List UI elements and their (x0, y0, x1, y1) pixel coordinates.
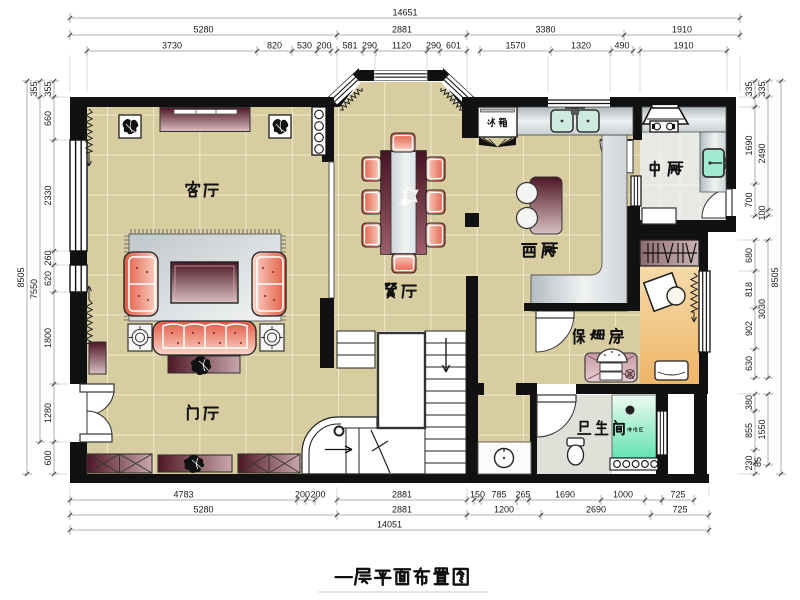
svg-text:855: 855 (744, 423, 754, 438)
svg-text:490: 490 (614, 41, 629, 51)
svg-text:380: 380 (744, 395, 754, 410)
svg-text:14651: 14651 (392, 8, 417, 18)
svg-text:8505: 8505 (770, 267, 780, 287)
svg-text:200: 200 (310, 490, 325, 500)
svg-text:3380: 3380 (535, 25, 555, 35)
svg-text:818: 818 (744, 282, 754, 297)
svg-text:660: 660 (43, 111, 53, 126)
svg-text:335: 335 (757, 81, 767, 96)
svg-text:1000: 1000 (613, 490, 633, 500)
svg-text:14051: 14051 (377, 520, 402, 530)
svg-text:820: 820 (267, 41, 282, 51)
svg-text:7550: 7550 (29, 279, 39, 299)
svg-text:355: 355 (43, 81, 53, 96)
svg-text:2490: 2490 (757, 143, 767, 163)
svg-text:630: 630 (744, 356, 754, 371)
svg-text:150: 150 (470, 490, 485, 500)
svg-text:600: 600 (43, 450, 53, 465)
svg-text:785: 785 (491, 490, 506, 500)
svg-text:1550: 1550 (757, 419, 767, 439)
svg-text:2881: 2881 (392, 25, 412, 35)
svg-text:530: 530 (297, 41, 312, 51)
svg-text:620: 620 (43, 271, 53, 286)
svg-text:1690: 1690 (555, 490, 575, 500)
svg-text:5280: 5280 (193, 505, 213, 515)
svg-text:2881: 2881 (392, 490, 412, 500)
svg-text:601: 601 (446, 41, 461, 51)
svg-text:902: 902 (744, 321, 754, 336)
svg-text:1910: 1910 (672, 25, 692, 35)
svg-text:100: 100 (757, 205, 767, 220)
svg-text:3730: 3730 (162, 41, 182, 51)
svg-text:581: 581 (342, 41, 357, 51)
svg-text:2330: 2330 (43, 185, 53, 205)
svg-text:700: 700 (744, 192, 754, 207)
svg-text:265: 265 (515, 490, 530, 500)
svg-text:1320: 1320 (571, 41, 591, 51)
svg-text:1690: 1690 (744, 135, 754, 155)
svg-text:725: 725 (670, 490, 685, 500)
svg-text:335: 335 (744, 81, 754, 96)
svg-text:200: 200 (295, 490, 310, 500)
svg-text:725: 725 (672, 505, 687, 515)
svg-text:2881: 2881 (392, 505, 412, 515)
svg-text:3030: 3030 (757, 299, 767, 319)
svg-text:1570: 1570 (505, 41, 525, 51)
svg-text:1120: 1120 (392, 41, 411, 51)
svg-text:2690: 2690 (586, 505, 606, 515)
svg-text:200: 200 (316, 41, 331, 51)
svg-text:1200: 1200 (494, 505, 514, 515)
svg-text:1800: 1800 (43, 328, 53, 348)
svg-text:260: 260 (43, 250, 53, 265)
svg-text:8505: 8505 (16, 267, 26, 287)
svg-text:1280: 1280 (43, 403, 53, 423)
svg-text:5280: 5280 (193, 25, 213, 35)
svg-text:290: 290 (426, 41, 441, 51)
svg-text:4783: 4783 (173, 490, 193, 500)
svg-text:1910: 1910 (673, 41, 693, 51)
svg-text:680: 680 (744, 248, 754, 263)
svg-text:85: 85 (753, 457, 763, 467)
svg-text:355: 355 (29, 81, 39, 96)
svg-text:290: 290 (362, 41, 377, 51)
